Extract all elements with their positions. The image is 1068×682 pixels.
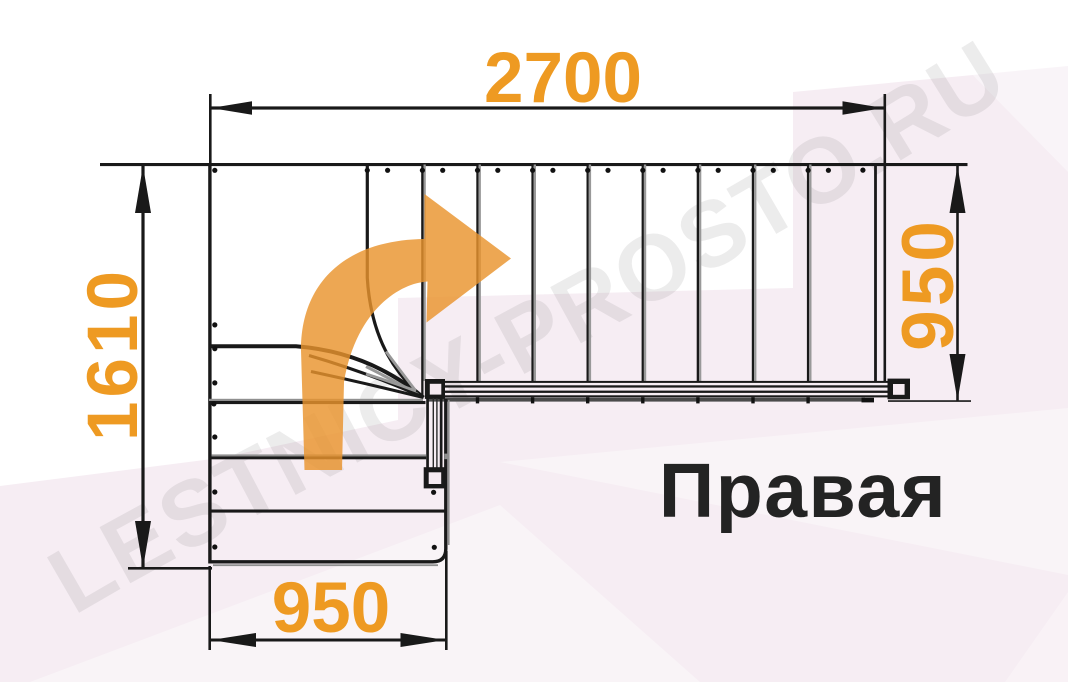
svg-text:950: 950 [272, 569, 390, 648]
svg-text:1610: 1610 [74, 267, 153, 441]
svg-text:950: 950 [888, 217, 969, 351]
svg-text:Правая: Правая [659, 448, 947, 534]
svg-text:2700: 2700 [484, 39, 642, 118]
